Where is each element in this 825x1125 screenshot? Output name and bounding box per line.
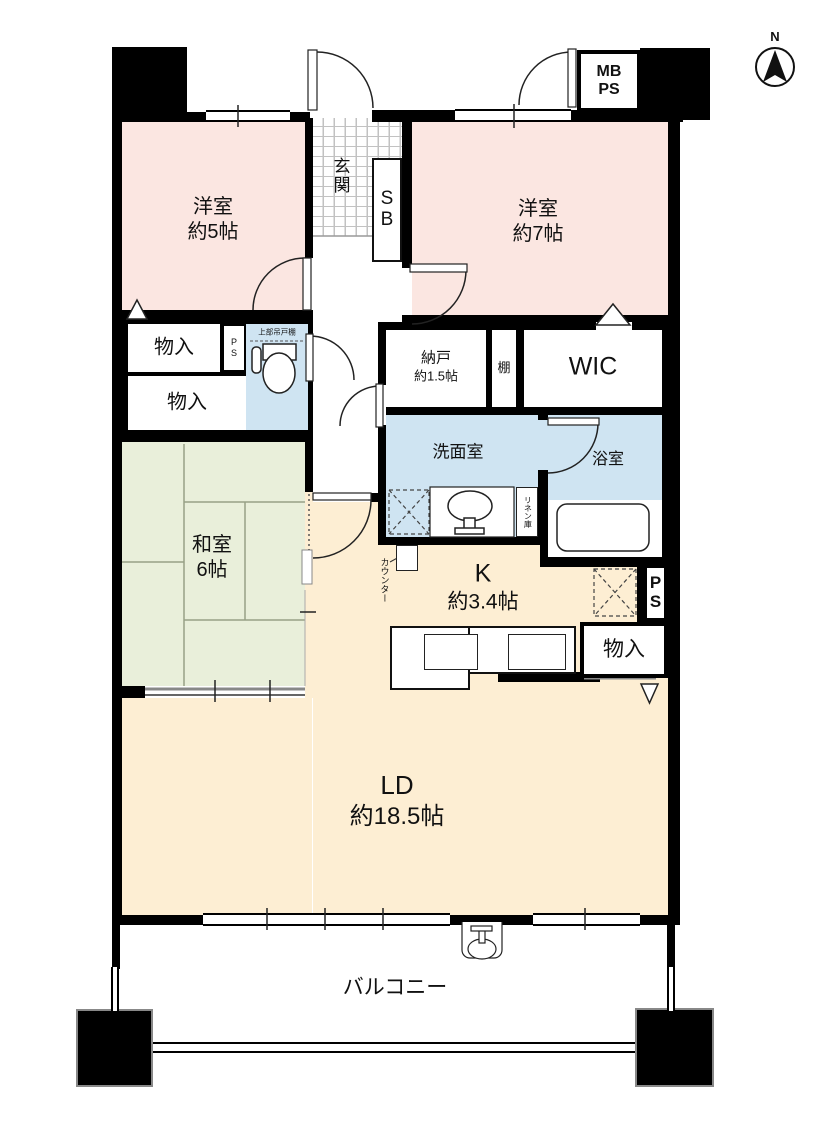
closet-marker-wic: [596, 304, 630, 325]
closet-label-upper-cabinet: 上部吊戸棚: [258, 327, 296, 336]
room-label-storeroom: 納戸約1.5帖: [414, 350, 458, 385]
kitchen-sink-basin: [424, 634, 478, 670]
bathtub-icon: [557, 504, 649, 551]
ld-door-leaf: [313, 493, 371, 500]
counter-box: [396, 545, 418, 571]
entrance-door-leaf: [308, 50, 317, 110]
mb-ps-shaft: MBPS: [577, 50, 641, 112]
toilet-door-arc: [310, 336, 354, 380]
room-label-japanese: 和室6帖: [192, 533, 232, 583]
balcony-faucet-icon: [462, 922, 502, 959]
entrance-door-arc: [317, 52, 373, 108]
compass-north-label: N: [770, 29, 779, 45]
shaft-label-ps-toilet: PS: [229, 337, 239, 359]
compass-icon: [756, 48, 794, 86]
room-label-bathroom: 浴室: [592, 450, 624, 470]
bathroom-door-arc: [548, 423, 598, 473]
west7-door-arc: [412, 270, 466, 324]
washing-machine-area-icon: [389, 490, 429, 534]
closet-marker-kitchen: [641, 684, 658, 703]
room-label-living: LD約18.5帖: [350, 769, 445, 832]
room-label-western5: 洋室約5帖: [187, 195, 238, 245]
room-label-wic: WIC: [569, 351, 618, 382]
refrigerator-area-icon: [594, 569, 636, 616]
shoe-box: SB: [372, 158, 402, 262]
washroom-door-leaf: [376, 384, 383, 427]
mbps-door-arc: [519, 52, 572, 105]
closet-marker-west5: [127, 300, 147, 319]
west7-door-leaf: [410, 264, 467, 272]
closet-label-counter: カウンター: [379, 558, 392, 603]
toilet-door-leaf: [306, 334, 313, 381]
door-leaves: [303, 49, 599, 500]
bathroom-door-leaf: [548, 418, 599, 425]
stove-box: [508, 634, 566, 670]
west5-door-arc: [253, 258, 305, 310]
room-label-washroom: 洗面室: [433, 441, 484, 462]
closet-label-storage1: 物入: [154, 336, 194, 361]
room-label-balcony: バルコニー: [343, 975, 448, 1001]
ps-kitchen-shaft: PS: [643, 564, 668, 622]
closet-label-storage2: 物入: [167, 391, 207, 416]
toilet-icon: [252, 344, 296, 393]
vanity-sink-icon: [430, 487, 514, 537]
west5-door-leaf: [303, 258, 311, 310]
room-label-kitchen: K約3.4帖: [447, 558, 518, 616]
ld-door-arc: [313, 500, 371, 558]
closet-storage3: 物入: [580, 622, 668, 678]
floor-plan: SB MBPS PS 物入 リネン庫 洋室約5帖 洋室約7帖 和室6帖 LD約1…: [0, 0, 825, 1125]
room-label-entrance: 玄関: [328, 157, 353, 195]
closet-label-shelf: 棚: [497, 360, 510, 376]
room-label-western7: 洋室約7帖: [512, 197, 563, 247]
linen-closet: リネン庫: [516, 487, 538, 537]
washroom-door-arc: [340, 386, 380, 426]
mbps-door-leaf: [568, 49, 576, 107]
